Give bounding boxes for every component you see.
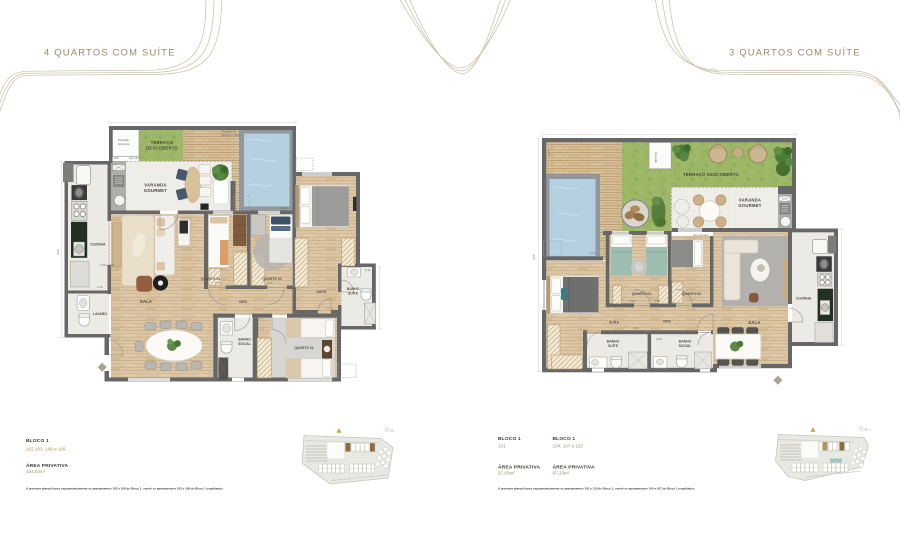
svg-text:COZINHA: COZINHA [796, 297, 812, 301]
svg-text:2,20: 2,20 [655, 299, 661, 303]
svg-text:QUARTO 01: QUARTO 01 [632, 292, 651, 296]
svg-text:1,50 x 2,50: 1,50 x 2,50 [100, 263, 114, 267]
svg-text:SALA: SALA [140, 299, 152, 304]
svg-text:2,20: 2,20 [656, 337, 662, 341]
svg-text:COZINHA: COZINHA [90, 243, 106, 247]
svg-text:BANHO: BANHO [238, 338, 251, 342]
svg-text:102,103, 108 e 109: 102,103, 108 e 109 [26, 447, 66, 452]
svg-text:BLOCO 1: BLOCO 1 [553, 436, 576, 442]
svg-text:104, 107 e 110: 104, 107 e 110 [553, 444, 584, 449]
svg-text:4,55: 4,55 [547, 150, 551, 156]
svg-text:2,70: 2,70 [267, 281, 273, 285]
svg-text:BANHO: BANHO [679, 340, 692, 344]
svg-text:QUARTO 01: QUARTO 01 [294, 346, 313, 350]
svg-text:SALA: SALA [748, 320, 760, 325]
svg-text:CIRC: CIRC [239, 300, 248, 304]
svg-text:2,70: 2,70 [215, 281, 221, 285]
svg-text:SUÍTE: SUÍTE [608, 343, 619, 348]
svg-text:TERRAÇO: TERRAÇO [151, 140, 174, 145]
svg-text:BLOCO 1: BLOCO 1 [26, 438, 49, 444]
svg-text:ÁREA PRIVATIVA: ÁREA PRIVATIVA [26, 462, 68, 469]
svg-text:Previsão: Previsão [654, 152, 658, 163]
svg-text:97,33m²: 97,33m² [553, 471, 570, 476]
svg-text:3 QUARTOS COM SUÍTE: 3 QUARTOS COM SUÍTE [729, 47, 861, 58]
svg-text:101: 101 [498, 444, 506, 449]
svg-text:A presente planta ilustra esqu: A presente planta ilustra esquematicamen… [498, 486, 696, 490]
svg-text:LAVABO: LAVABO [93, 312, 107, 316]
svg-text:4,93: 4,93 [113, 156, 119, 160]
svg-text:2,20: 2,20 [633, 326, 639, 330]
svg-text:A presente planta ilustra esqu: A presente planta ilustra esquematicamen… [26, 486, 224, 490]
svg-text:3,47: 3,47 [618, 139, 624, 143]
svg-text:SUÍTE: SUÍTE [609, 320, 620, 325]
svg-text:2,50: 2,50 [630, 299, 636, 303]
svg-text:CIRC: CIRC [663, 320, 672, 324]
svg-text:ÁREA PRIVATIVA: ÁREA PRIVATIVA [498, 463, 540, 470]
svg-text:1,34: 1,34 [365, 268, 371, 272]
svg-text:TERRAÇO DESCOBERTO: TERRAÇO DESCOBERTO [683, 172, 739, 177]
svg-text:piscina e deck: piscina e deck [222, 133, 240, 137]
svg-text:SOCIAL: SOCIAL [679, 344, 692, 348]
svg-text:4 QUARTOS COM SUÍTE: 4 QUARTOS COM SUÍTE [44, 47, 176, 58]
svg-text:SOCIAL: SOCIAL [238, 342, 251, 346]
svg-text:SUÍTE: SUÍTE [317, 289, 328, 294]
svg-text:SUÍTE: SUÍTE [348, 291, 359, 296]
svg-text:1,20: 1,20 [97, 285, 103, 289]
svg-text:kit ducha: kit ducha [118, 142, 130, 146]
svg-text:GOURMET: GOURMET [144, 188, 167, 193]
svg-text:QUARTO 03: QUARTO 03 [682, 292, 701, 296]
svg-text:GOURMET: GOURMET [738, 203, 761, 208]
svg-text:4,55: 4,55 [532, 254, 536, 260]
svg-text:VARANDA: VARANDA [144, 183, 166, 188]
svg-text:104,54m²: 104,54m² [26, 469, 46, 474]
svg-text:VARANDA: VARANDA [739, 198, 761, 203]
svg-text:BANHO: BANHO [607, 340, 620, 344]
svg-text:DESCOBERTO: DESCOBERTO [146, 146, 178, 151]
svg-text:4,93: 4,93 [56, 249, 60, 255]
svg-text:piso elevado: piso elevado [693, 233, 709, 237]
svg-text:97,83m²: 97,83m² [498, 471, 515, 476]
svg-text:piso deck: piso deck [129, 156, 141, 160]
svg-text:2,27: 2,27 [590, 251, 596, 255]
svg-text:BLOCO 1: BLOCO 1 [498, 436, 521, 442]
svg-text:2,20: 2,20 [281, 206, 287, 210]
svg-text:ÁREA PRIVATIVA: ÁREA PRIVATIVA [553, 463, 595, 470]
svg-text:BANHO: BANHO [347, 287, 360, 291]
